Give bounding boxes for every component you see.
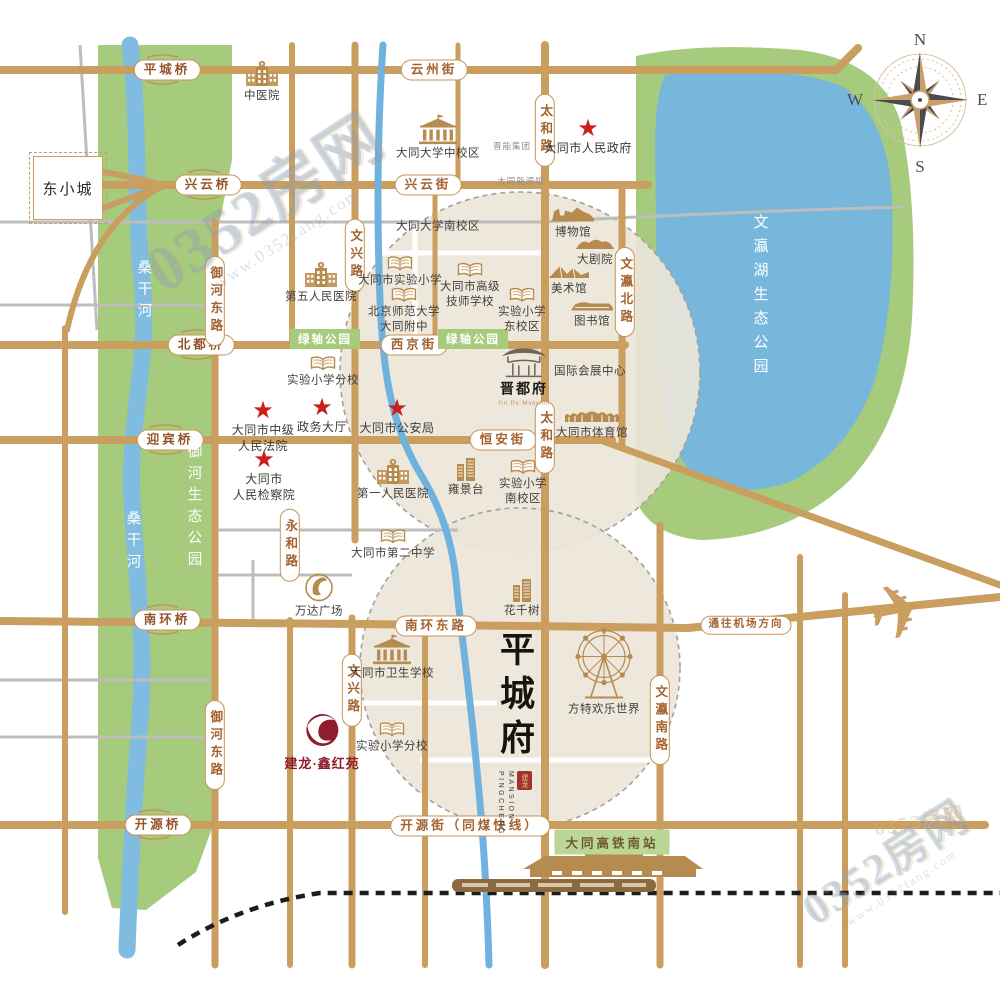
fangte-happy-world: 方特欢乐世界 [568,627,640,718]
experimental-primary-branch-s: 实验小学分校 [356,722,428,755]
book-icon [391,287,417,303]
art-gallery: 美术馆 [547,263,591,297]
experimental-primary-east-label: 实验小学 东校区 [498,305,546,335]
library-icon [569,301,615,313]
bridge-pingcheng: 平城桥 [134,60,201,81]
station-datong-south: 大同高铁南站 [554,830,669,855]
bridge-xingyun: 兴云桥 [175,175,242,196]
library: 图书馆 [569,301,615,330]
yongjingtai-label: 雍景台 [448,483,484,498]
tcm-hospital-label: 中医院 [244,89,280,104]
peoples-procuratorate-label: 大同市 人民检察院 [233,473,296,504]
yongjingtai: 雍景台 [448,456,484,498]
tcm-hospital: 中医院 [244,60,280,104]
river-sanggan-north: 桑干河 [134,260,155,325]
library-label: 图书馆 [574,315,610,330]
experimental-primary-branch-s-label: 实验小学分校 [356,740,428,755]
street-hengan: 恒安街 [470,430,537,451]
street-xingyun: 兴云街 [395,175,462,196]
experimental-primary-branch-n: 实验小学分校 [287,356,359,389]
datong-no2-middle-school-label: 大同市第二中学 [351,547,435,562]
bridge-nanhuan: 南环桥 [134,610,201,631]
book-icon [379,722,405,738]
street-yunzhou: 云州街 [401,60,468,81]
bridge-kaiyuan: 开源桥 [125,815,192,836]
fifth-peoples-hospital: 第五人民医院 [285,261,357,305]
datong-health-school: 大同市卫生学校 [350,635,434,682]
star-icon: ★ [253,450,275,470]
road-wenying-north: 文瀛北路 [615,247,635,337]
location-map: N S W E 平城桥云州街兴云桥兴云街北都桥西京街迎宾桥恒安街南环桥南环东路通… [0,0,1000,1000]
datong-univ-middle-campus-label: 大同大学中校区 [396,147,480,162]
sports-center: 大同市体育馆 [556,409,628,441]
first-peoples-hospital: 第一人民医院 [357,458,429,502]
book-icon [510,459,536,475]
pingcheng-en-1: PINGCHENG [497,771,504,836]
tower-icon [511,577,533,602]
street-to-airport: 通往机场方向 [701,616,792,635]
huaqianshu-label: 花千树 [504,604,540,619]
senior-technician-school: 大同市高级 技师学校 [440,262,500,310]
street-nanhuan-east: 南环东路 [395,616,477,637]
star-icon: ★ [577,119,599,139]
museum-icon [550,204,596,224]
wanda-plaza: 万达广场 [295,573,343,620]
book-icon [387,256,413,272]
government-affairs-hall-label: 政务大厅 [297,420,347,436]
road-yonghe: 永和路 [280,509,300,582]
datong-energy-hall: 大同能源馆 [497,175,545,187]
jianlong-name: 建龙·鑫红苑 [284,753,359,772]
datong-univ-south-campus: 大同大学南校区 [396,218,480,235]
dongxiaocheng-area: 东小城 [33,156,103,220]
bnu-datong-affiliated-label: 北京师范大学 大同附中 [368,305,440,335]
wanda-icon [304,573,334,603]
peoples-procuratorate: ★大同市 人民检察院 [233,450,296,504]
intl-exhibition-center-label: 国际会展中心 [554,365,626,380]
hospital-icon [244,60,280,87]
stadium-icon [563,409,621,424]
park-green-axis-west: 绿轴公园 [290,329,360,349]
jindufu: 晋都府Jin Du Mansion [498,343,550,406]
labels-layer: 平城桥云州街兴云桥兴云街北都桥西京街迎宾桥恒安街南环桥南环东路通往机场方向开源桥… [0,0,1000,1000]
book-icon [310,356,336,372]
gate-icon [500,343,548,379]
star-icon: ★ [386,399,408,419]
jianlong-xinhongyuan-logo: 建龙·鑫红苑 [284,712,359,772]
datong-experimental-primary: 大同市实验小学 [358,256,442,289]
book-icon [380,529,406,545]
pingcheng-en-2: MANSION [507,771,514,821]
jianlong-swirl-icon [304,712,340,753]
river-sanggan-south: 桑干河 [123,511,144,576]
intl-exhibition-center: 国际会展中心 [554,363,626,380]
jindufu-label: 晋都府 [500,381,548,399]
jinneng-group: 晋能集团 [493,140,531,152]
pingcheng-title: 平城府 [497,631,532,763]
park-wenyinghu-eco: 文瀛湖生态公园 [750,214,771,382]
datong-univ-middle-campus: 大同大学中校区 [396,115,480,162]
university-icon [371,635,413,665]
star-icon: ★ [252,401,274,421]
public-security-bureau-label: 大同市公安局 [359,421,434,437]
senior-technician-school-label: 大同市高级 技师学校 [440,280,500,310]
road-wenying-south: 文瀛南路 [650,675,670,765]
city-government-label: 大同市人民政府 [544,141,632,157]
wanda-plaza-label: 万达广场 [295,605,343,620]
experimental-primary-south-label: 实验小学 南校区 [499,477,547,507]
gallery-icon [547,263,591,280]
experimental-primary-east: 实验小学 东校区 [498,287,546,335]
fangte-happy-world-label: 方特欢乐世界 [568,703,640,718]
star-icon: ★ [311,398,333,418]
pingcheng-mansion-logo: 平城府 PINGCHENG MANSION 建龙 [497,631,532,836]
road-yuhe-east-south: 御河东路 [205,700,225,790]
theater-icon [574,236,616,251]
tower-icon [455,456,477,481]
datong-no2-middle-school: 大同市第二中学 [351,529,435,562]
bnu-datong-affiliated: 北京师范大学 大同附中 [368,287,440,335]
fifth-peoples-hospital-label: 第五人民医院 [285,290,357,305]
university-icon [417,115,459,145]
experimental-primary-branch-n-label: 实验小学分校 [287,374,359,389]
hospital-icon [303,261,339,288]
first-peoples-hospital-label: 第一人民医院 [357,487,429,502]
airplane-icon: ✈ [860,568,940,657]
jindufu-subtitle: Jin Du Mansion [498,401,550,407]
datong-univ-south-campus-label: 大同大学南校区 [396,220,480,235]
huaqianshu: 花千树 [504,577,540,619]
jianlong-seal: 建龙 [517,771,532,790]
city-government: ★大同市人民政府 [544,119,632,157]
book-icon [509,287,535,303]
road-yuhe-east-north: 御河东路 [205,256,225,346]
book-icon [457,262,483,278]
park-yuhe-eco: 御河生态公园 [184,444,205,573]
dongxiaocheng-label: 东小城 [42,178,93,199]
art-gallery-label: 美术馆 [551,282,587,297]
public-security-bureau: ★大同市公安局 [359,399,434,437]
datong-health-school-label: 大同市卫生学校 [350,667,434,682]
sports-center-label: 大同市体育馆 [556,426,628,441]
museum: 博物馆 [550,204,596,241]
government-affairs-hall: ★政务大厅 [297,398,347,436]
hospital-icon [375,458,411,485]
experimental-primary-south: 实验小学 南校区 [499,459,547,507]
ferris-icon [571,627,637,701]
